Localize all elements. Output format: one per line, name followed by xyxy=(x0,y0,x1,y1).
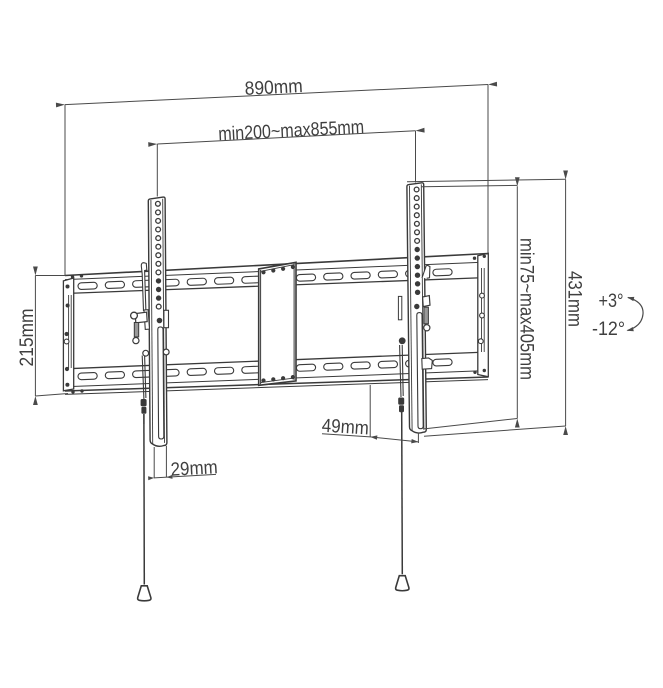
svg-text:+3°: +3° xyxy=(599,291,624,312)
svg-text:890mm: 890mm xyxy=(244,76,303,100)
svg-text:431mm: 431mm xyxy=(564,271,585,327)
svg-text:29mm: 29mm xyxy=(170,457,218,481)
svg-text:49mm: 49mm xyxy=(321,416,369,440)
svg-text:215mm: 215mm xyxy=(17,309,38,367)
svg-text:-12°: -12° xyxy=(592,319,625,340)
svg-text:min75~max405mm: min75~max405mm xyxy=(516,238,537,380)
